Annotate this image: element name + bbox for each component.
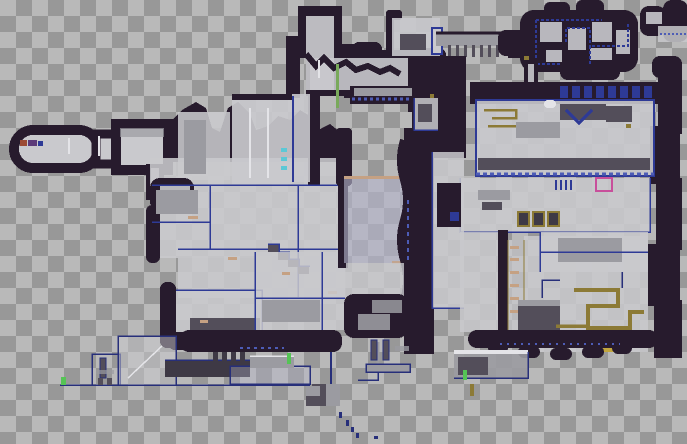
northwest-complex-shape bbox=[281, 148, 287, 152]
right-complex-shape bbox=[510, 297, 519, 300]
right-complex-shape bbox=[478, 158, 650, 170]
bottom-left-wireframe-shape bbox=[306, 396, 320, 406]
bottom-left-wireframe-shape bbox=[98, 378, 103, 385]
right-complex-shape bbox=[516, 122, 560, 138]
right-complex-shape bbox=[510, 310, 519, 313]
bottom-center-structures-shape bbox=[346, 420, 349, 426]
northwest-complex-shape bbox=[281, 166, 287, 170]
bottom-left-wireframe-shape bbox=[96, 370, 114, 374]
left-tunnel-arm-shape bbox=[120, 128, 164, 137]
bottom-center-structures-shape bbox=[371, 340, 377, 360]
central-shaft-shape bbox=[418, 104, 432, 122]
left-tunnel-arm-shape bbox=[20, 140, 27, 146]
upper-cave-passage-shape bbox=[318, 60, 320, 78]
right-complex-shape bbox=[582, 346, 604, 358]
central-shaft-shape bbox=[358, 314, 390, 330]
central-shaft-shape bbox=[430, 94, 434, 98]
left-tunnel-arm-shape bbox=[28, 140, 37, 146]
northwest-complex-shape bbox=[262, 300, 320, 322]
right-complex-shape bbox=[658, 70, 682, 134]
right-complex-shape bbox=[548, 212, 559, 226]
right-complex-shape bbox=[510, 246, 519, 249]
right-complex-shape bbox=[533, 212, 544, 226]
bottom-left-wireframe-shape bbox=[107, 378, 112, 385]
right-complex-shape bbox=[460, 232, 498, 332]
bottom-left-wireframe-shape bbox=[287, 353, 291, 364]
northwest-complex-shape bbox=[232, 96, 292, 184]
northwest-complex-shape bbox=[281, 157, 287, 161]
northwest-complex bbox=[146, 90, 352, 352]
ledge-bridge-shape bbox=[488, 45, 491, 57]
bottom-center-structures-shape bbox=[366, 364, 410, 372]
ledge-bridge-shape bbox=[400, 34, 426, 50]
right-complex-shape bbox=[606, 106, 632, 122]
upper-right-maze-shape bbox=[524, 56, 529, 60]
northwest-complex-shape bbox=[228, 257, 237, 260]
right-complex-shape bbox=[648, 244, 680, 306]
ledge-bridge-shape bbox=[448, 45, 451, 57]
right-complex-shape bbox=[550, 348, 572, 360]
bottom-left-wireframe-shape bbox=[230, 366, 310, 384]
upper-right-maze-shape bbox=[568, 28, 586, 50]
central-unexplored-room-shape bbox=[344, 179, 406, 263]
right-complex-shape bbox=[558, 238, 622, 262]
bottom-center-structures-shape bbox=[339, 412, 342, 418]
bottom-left-wireframe-shape bbox=[306, 386, 320, 396]
top-right-islands bbox=[640, 0, 687, 42]
northwest-complex-shape bbox=[292, 94, 310, 182]
northwest-complex-shape bbox=[156, 190, 198, 214]
upper-right-maze bbox=[498, 0, 638, 94]
right-complex-shape bbox=[478, 190, 510, 200]
bottom-center-structures-shape bbox=[463, 370, 467, 380]
ledge-bridge-shape bbox=[472, 45, 475, 57]
left-tunnel-arm-shape bbox=[38, 141, 43, 146]
bottom-left-wireframe-shape bbox=[100, 358, 106, 378]
right-complex-shape bbox=[656, 178, 682, 250]
right-complex-shape bbox=[510, 271, 519, 274]
upper-right-maze-shape bbox=[590, 48, 612, 60]
bottom-left-wireframe-shape bbox=[61, 377, 66, 385]
bottom-center-structures bbox=[312, 340, 528, 439]
left-tunnel-arm-shape bbox=[68, 138, 70, 154]
right-complex-shape bbox=[510, 284, 519, 287]
bottom-center-structures-shape bbox=[356, 433, 359, 438]
northwest-complex-shape bbox=[188, 216, 198, 219]
upper-cave-passage-shape bbox=[352, 42, 382, 56]
bottom-center-structures-shape bbox=[470, 384, 474, 396]
right-complex-shape bbox=[612, 342, 632, 354]
northwest-complex-shape bbox=[267, 108, 269, 178]
right-complex-shape bbox=[518, 212, 529, 226]
bottom-center-structures-shape bbox=[395, 346, 409, 351]
right-complex-shape bbox=[482, 202, 502, 210]
upper-right-maze-shape bbox=[592, 22, 612, 42]
ledge-bridge-shape bbox=[464, 45, 467, 57]
upper-cave-passage-shape bbox=[286, 36, 300, 98]
ledge-bridge-shape bbox=[480, 45, 483, 57]
upper-right-maze-shape bbox=[540, 22, 562, 42]
transparency-canvas bbox=[0, 0, 687, 444]
central-shaft-shape bbox=[372, 300, 402, 313]
right-complex-shape bbox=[432, 152, 464, 308]
right-complex-shape bbox=[654, 300, 682, 358]
northwest-complex-shape bbox=[249, 108, 251, 178]
bottom-center-structures-shape bbox=[351, 427, 354, 432]
northwest-complex-shape bbox=[184, 120, 206, 174]
level-map-svg bbox=[0, 0, 687, 444]
ledge-bridge-shape bbox=[456, 45, 459, 57]
bottom-center-structures-shape bbox=[383, 340, 389, 360]
bottom-center-structures-shape bbox=[454, 350, 528, 354]
bottom-center-structures-shape bbox=[374, 436, 378, 439]
upper-cave-passage-shape bbox=[336, 64, 339, 108]
northwest-complex-shape bbox=[282, 272, 290, 275]
central-shaft-shape bbox=[346, 263, 404, 297]
upper-right-maze-shape bbox=[546, 50, 562, 62]
central-unexplored-room bbox=[344, 176, 406, 264]
left-tunnel-arm-shape bbox=[14, 130, 98, 168]
right-complex-shape bbox=[510, 258, 519, 261]
bottom-center-structures-shape bbox=[458, 357, 488, 375]
bottom-left-wireframe-shape bbox=[213, 352, 218, 377]
right-complex-shape bbox=[626, 124, 631, 128]
central-unexplored-room-shape bbox=[344, 176, 404, 179]
right-complex-shape bbox=[450, 212, 459, 221]
upper-right-maze-shape bbox=[508, 44, 526, 58]
right-complex-shape bbox=[544, 100, 556, 108]
northwest-complex-shape bbox=[200, 320, 208, 323]
right-complex bbox=[432, 56, 682, 360]
northwest-complex-shape bbox=[232, 94, 292, 100]
top-right-islands-shape bbox=[646, 12, 662, 24]
northwest-complex-shape bbox=[268, 244, 279, 252]
bottom-left-wireframe-shape bbox=[222, 352, 227, 377]
left-tunnel-arm-shape bbox=[98, 136, 100, 156]
